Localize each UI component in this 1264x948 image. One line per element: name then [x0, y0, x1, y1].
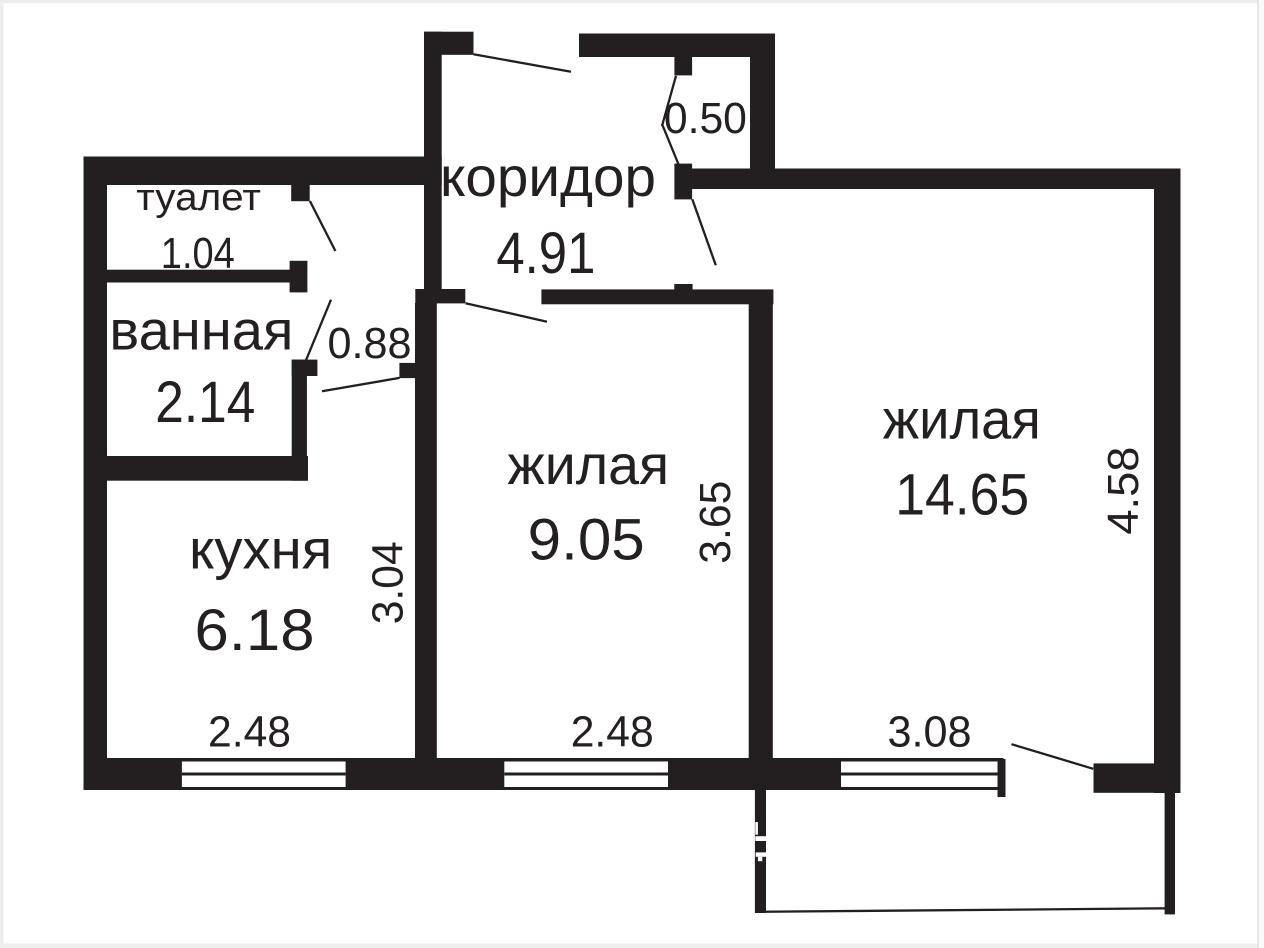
svg-text:0.88: 0.88 [328, 319, 412, 368]
svg-text:6.18: 6.18 [195, 598, 315, 663]
svg-text:2.48: 2.48 [208, 708, 291, 757]
svg-text:2.14: 2.14 [155, 370, 255, 435]
svg-text:коридор: коридор [440, 145, 656, 208]
svg-text:9.05: 9.05 [528, 508, 645, 573]
svg-text:ванная: ванная [109, 299, 293, 362]
svg-text:туалет: туалет [136, 177, 261, 219]
svg-text:жилая: жилая [508, 433, 670, 496]
svg-text:3.65: 3.65 [691, 481, 740, 564]
svg-text:2.48: 2.48 [571, 708, 654, 757]
svg-text:4.91: 4.91 [496, 221, 595, 286]
svg-text:14.65: 14.65 [895, 463, 1029, 528]
svg-text:3.04: 3.04 [364, 541, 413, 624]
svg-text:1.04: 1.04 [161, 229, 235, 278]
svg-text:жилая: жилая [883, 387, 1041, 450]
svg-text:3.08: 3.08 [888, 708, 972, 757]
svg-text:0.50: 0.50 [664, 94, 747, 143]
svg-text:4.58: 4.58 [1099, 447, 1148, 535]
svg-text:кухня: кухня [189, 517, 332, 580]
